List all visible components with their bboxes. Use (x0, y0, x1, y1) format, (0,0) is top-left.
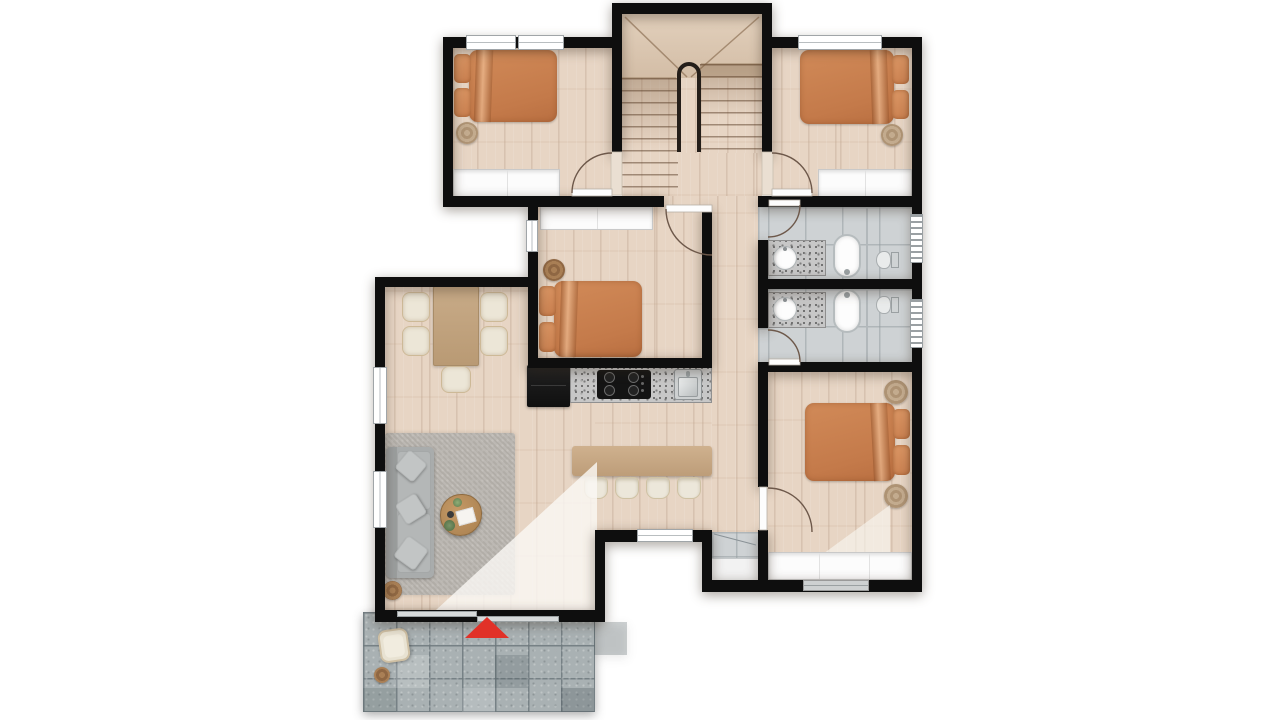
floor-plan-canvas (0, 0, 1280, 720)
window-bath-lower (910, 299, 923, 348)
window-bath-upper (910, 214, 923, 263)
wall (762, 3, 772, 155)
wall-layer (0, 0, 1280, 720)
sliding-door-panel (397, 611, 477, 617)
wall (375, 277, 538, 287)
window-bedroom-middle (526, 220, 538, 252)
wall (443, 196, 664, 207)
wall (612, 3, 622, 155)
wall (375, 277, 385, 622)
window-bedroom-tr (798, 35, 882, 50)
wall (702, 207, 712, 368)
window-kitchen-rear (637, 529, 693, 542)
window-dining (373, 367, 387, 424)
wall (528, 358, 712, 368)
window-bedroom-tl (518, 35, 564, 50)
sliding-door-panel (477, 616, 559, 622)
wall (758, 196, 768, 207)
wall (612, 3, 772, 14)
wall (758, 240, 768, 328)
wall (595, 530, 605, 622)
wall (768, 196, 922, 207)
wall (912, 37, 922, 207)
wall (758, 372, 768, 487)
window-bedroom-tl (466, 35, 516, 50)
wall (758, 362, 922, 372)
wall (443, 37, 453, 207)
wall (768, 279, 922, 289)
window-living (373, 471, 387, 528)
window-bedroom-br (803, 580, 869, 591)
